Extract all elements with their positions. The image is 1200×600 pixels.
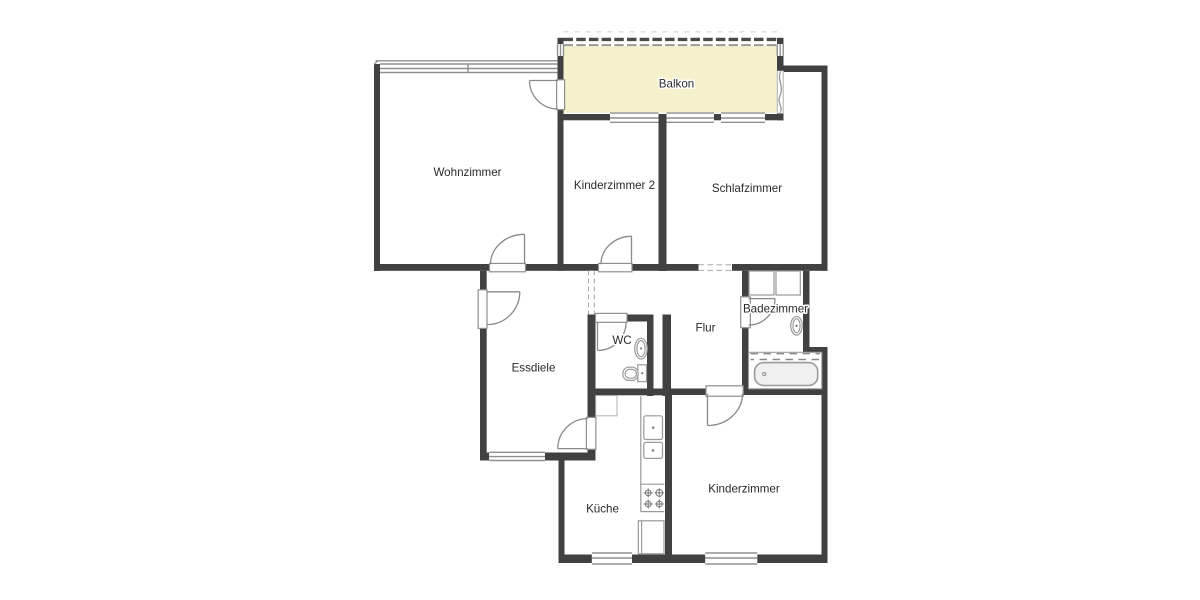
svg-text:WC: WC bbox=[612, 334, 631, 347]
svg-text:Schlafzimmer: Schlafzimmer bbox=[712, 182, 782, 195]
svg-text:Küche: Küche bbox=[586, 503, 619, 516]
svg-text:Balkon: Balkon bbox=[659, 78, 694, 91]
svg-text:Badezimmer: Badezimmer bbox=[743, 303, 808, 316]
svg-text:Essdiele: Essdiele bbox=[512, 362, 556, 375]
svg-text:Wohnzimmer: Wohnzimmer bbox=[433, 166, 501, 179]
svg-text:Kinderzimmer: Kinderzimmer bbox=[708, 483, 780, 496]
svg-text:Kinderzimmer 2: Kinderzimmer 2 bbox=[574, 179, 655, 192]
svg-text:Flur: Flur bbox=[696, 322, 716, 335]
